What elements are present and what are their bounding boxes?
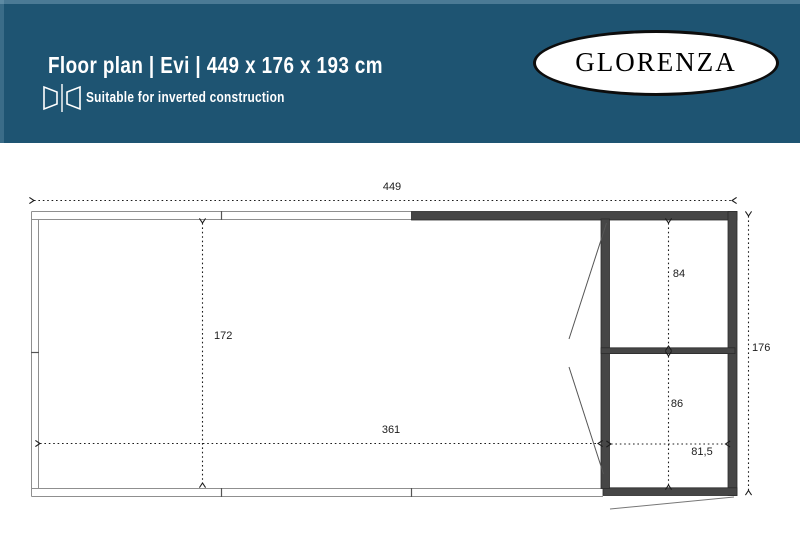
- canopy-post-ticks: [31, 211, 412, 497]
- dim-overall-depth: 176: [750, 342, 772, 354]
- canopy-outline: [32, 212, 604, 497]
- floor-plan-drawing: [0, 0, 800, 533]
- dim-room-width: 81,5: [689, 446, 714, 458]
- dim-canopy-depth: 172: [212, 330, 234, 342]
- room-walls: [412, 212, 738, 496]
- dim-overall-width: 449: [381, 181, 403, 193]
- dimension-lines: [34, 201, 749, 491]
- dim-room-upper-depth: 84: [671, 268, 687, 280]
- dim-room-lower-depth: 86: [669, 398, 685, 410]
- dim-canopy-width: 361: [380, 424, 402, 436]
- rear-door-swing-line: [610, 497, 734, 509]
